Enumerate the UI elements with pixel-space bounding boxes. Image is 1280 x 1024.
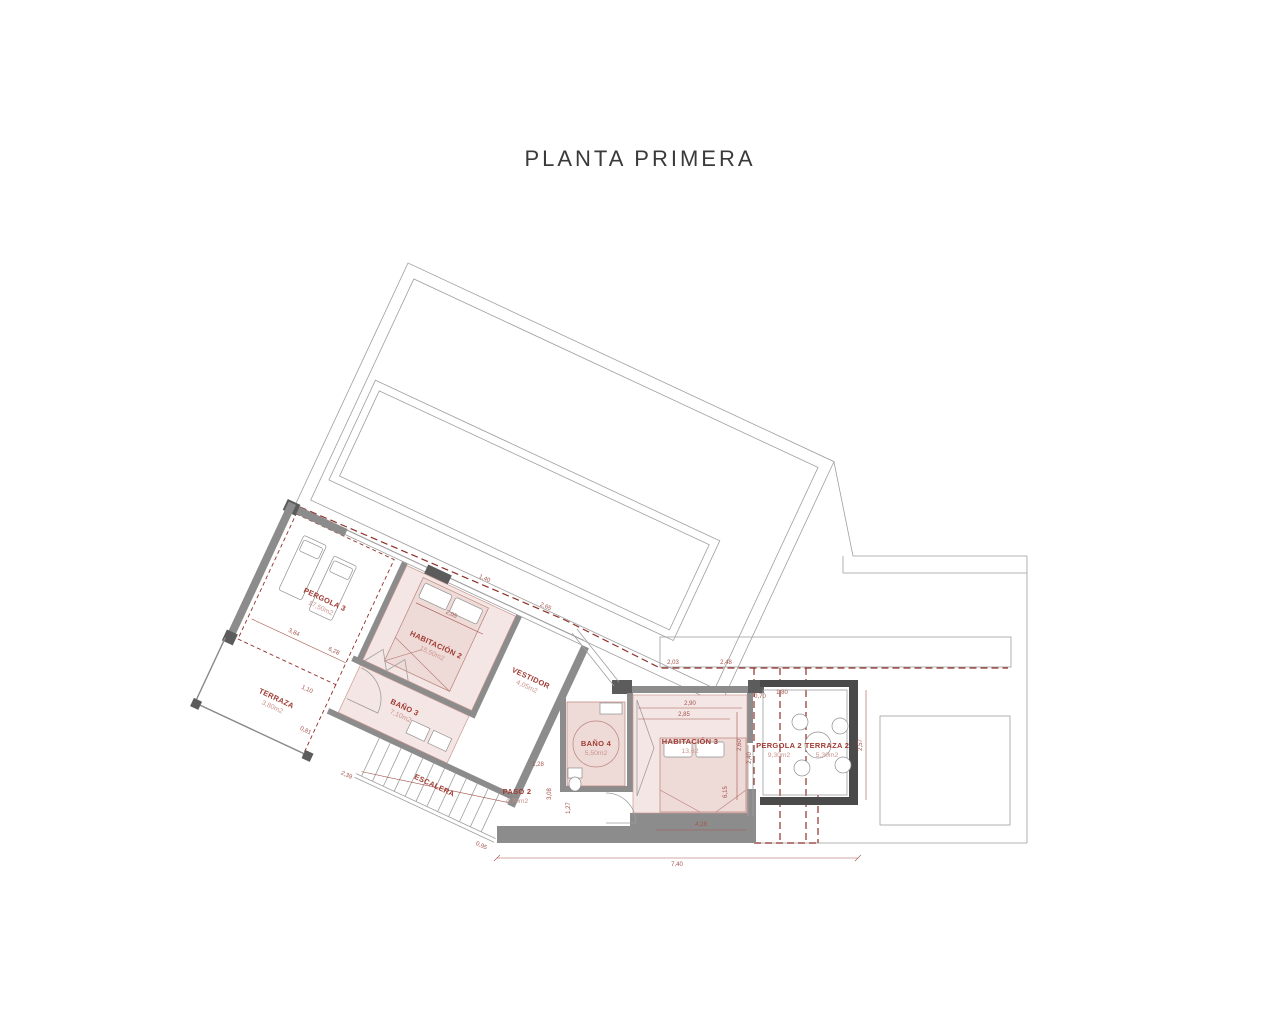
room-area-habitacion3: 13,62 [681,748,698,755]
wing-group: PERGOLA 3 17,50m2 TERRAZA 3,80m2 HABITAC… [187,499,592,855]
room-area-terraza2: 5,30m2 [816,752,839,759]
dim-label: 1,10 [300,685,314,696]
dim-label: 0,95 [475,841,489,852]
dim-label: 2,60 [737,739,743,751]
dim-label: 0,81 [299,726,313,737]
room-label-pergola2: PERGOLA 2 [756,741,802,750]
dim-label: 2,40 [747,752,753,764]
dim-label: 2,90 [684,701,696,707]
lower-terrace-band [660,637,1011,667]
floor-plan-svg: PERGOLA 3 17,50m2 TERRAZA 3,80m2 HABITAC… [0,0,1280,1024]
page: PLANTA PRIMERA [0,0,1280,1024]
room-label-terraza2: TERRAZA 2 [805,741,850,750]
room-label-paso2: PASO 2 [503,787,532,796]
dim-label: 6,28 [327,646,341,657]
dim-label: 1,27 [566,802,572,814]
dim-label: 2,85 [678,712,690,718]
dim-label: 3,84 [287,628,301,639]
dim-label: 2,65 [539,602,553,612]
dim-label: 3,08 [547,788,553,800]
dim-label: 0,70 [754,694,766,700]
lower-terrace-square [880,716,1010,825]
dim-label: 2,39 [340,770,354,781]
dim-label: 1,40 [478,574,492,584]
dim-label: 1,28 [532,762,544,768]
dim-label: 4,28 [695,822,707,828]
bed-icon-hab3 [660,738,746,812]
room-label-habitacion3: HABITACIÓN 3 [662,737,718,746]
dim-label: 1,80 [776,690,788,696]
room-area-pergola2: 9,30m2 [768,752,791,759]
room-label-bano4: BAÑO 4 [581,739,612,748]
dim-label: 2,48 [720,660,732,666]
dim-label: 6,15 [723,786,729,798]
room-area-bano4: 5,50m2 [585,750,608,757]
dim-label: 7,40 [671,862,683,868]
dim-label: 2,03 [667,660,679,666]
dim-label: 2,57 [858,739,864,751]
room-area-paso2: 4,70m2 [506,798,529,805]
